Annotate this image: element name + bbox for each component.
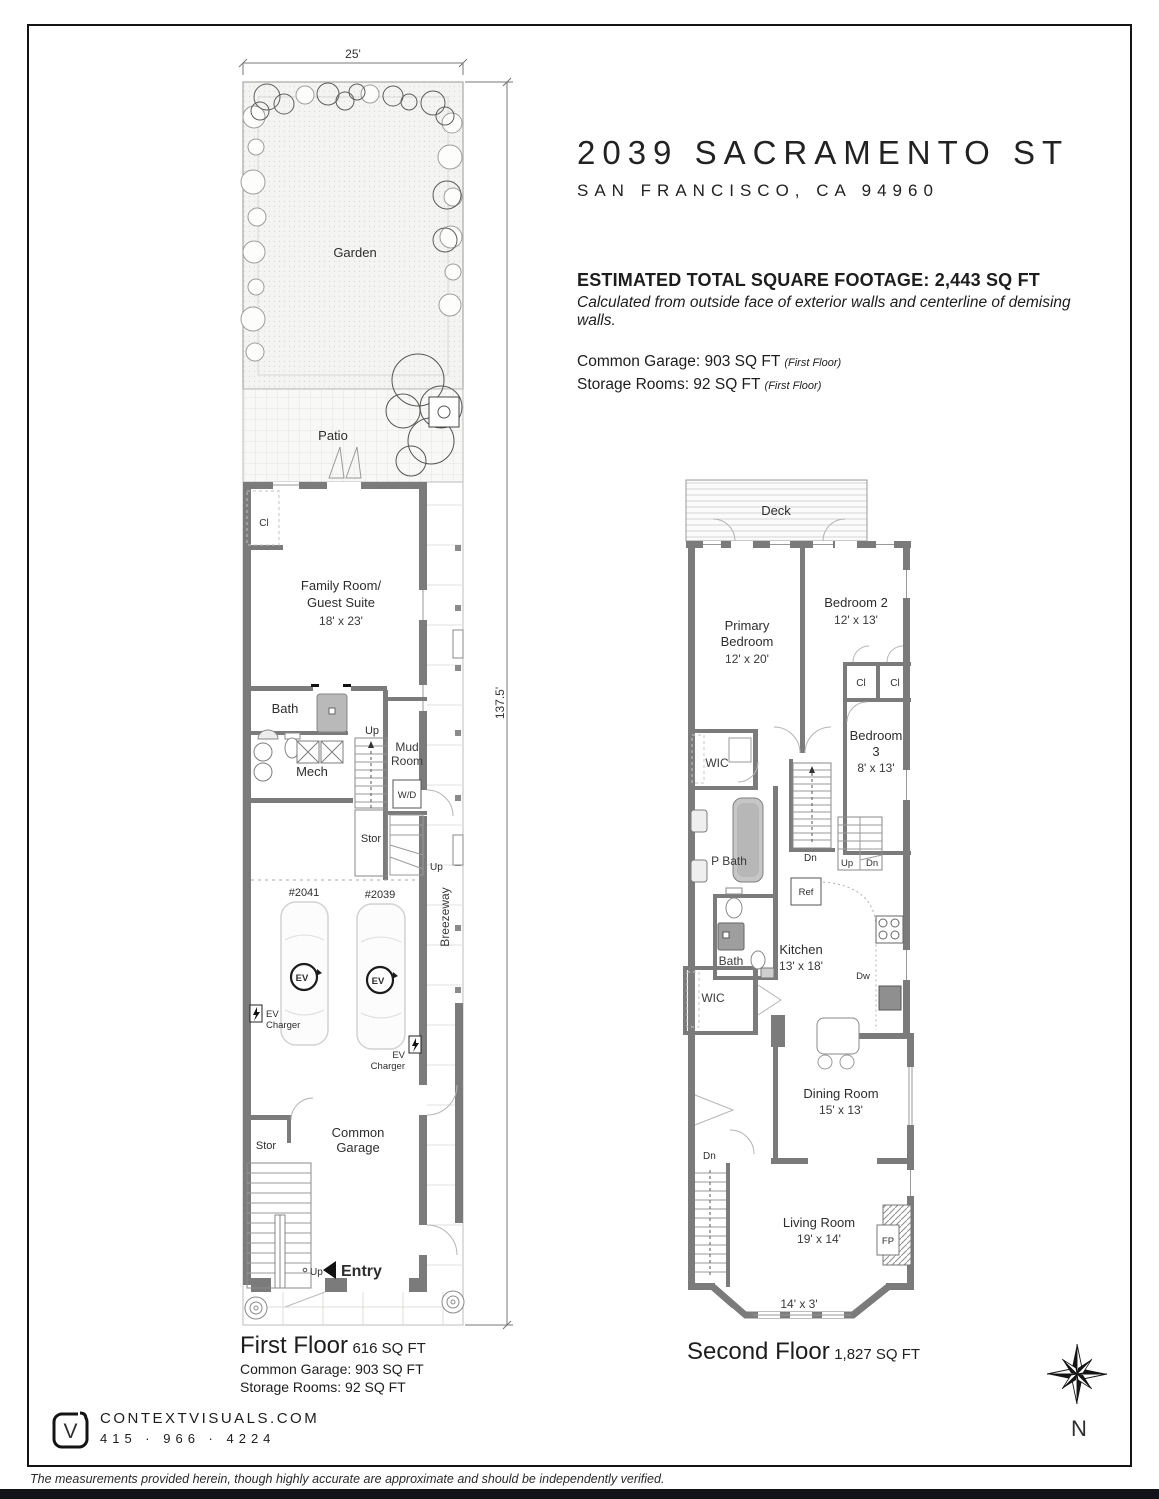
wic-upper: WIC xyxy=(692,735,751,783)
bath-label: Bath xyxy=(272,701,299,716)
second-floor-area: 1,827 SQ FT xyxy=(834,1346,920,1363)
counter-edge xyxy=(823,882,876,1030)
deck-label: Deck xyxy=(761,503,791,518)
bedroom3-label-1: Bedroom xyxy=(850,728,903,743)
footer-website: CONTEXTVISUALS.COM xyxy=(100,1410,319,1427)
deck: Deck xyxy=(686,480,867,541)
property-city: SAN FRANCISCO, CA 94960 xyxy=(577,181,1069,201)
utility-box xyxy=(453,630,463,658)
entry-stair: Up xyxy=(247,1163,323,1288)
garage-label-1: Common xyxy=(332,1125,385,1140)
pbath-sink-2 xyxy=(691,860,707,882)
garden-label: Garden xyxy=(333,245,376,260)
fp-label: FP xyxy=(882,1236,894,1247)
pbath-sink-1 xyxy=(691,810,707,832)
island xyxy=(817,1018,859,1054)
dimension-top xyxy=(239,59,467,75)
lower-stair: Dn xyxy=(695,1151,726,1275)
footer-phone: 415 · 966 · 4224 xyxy=(100,1431,319,1446)
storage-floor-note: (First Floor) xyxy=(765,380,822,392)
lot-depth-dim: 137.5' xyxy=(493,687,507,719)
bedroom2-dim: 12' x 13' xyxy=(834,613,878,627)
mud-room: Mud Room W/D xyxy=(391,740,423,808)
sf-shower xyxy=(718,923,744,950)
primary-label-1: Primary xyxy=(725,618,770,633)
bedroom3-label-2: 3 xyxy=(872,744,879,759)
ev-badge-2-label: EV xyxy=(372,976,385,987)
wic-upper-label: WIC xyxy=(705,756,729,770)
breezeway-label: Breezeway xyxy=(438,887,452,946)
compass-rose: N xyxy=(1032,1336,1122,1446)
sf-bath-label: Bath xyxy=(719,954,744,968)
wic-lower-label: WIC xyxy=(701,991,725,1005)
family-room: Family Room/ Guest Suite 18' x 23' xyxy=(301,578,382,628)
sqft-note: Calculated from outside face of exterior… xyxy=(577,294,1097,330)
kitchen: Ref Dw Kitchen 13' x 18' xyxy=(779,878,903,1069)
car-2039: #2039 EV xyxy=(357,889,405,1049)
side-wall xyxy=(455,1003,463,1223)
primary-label-2: Bedroom xyxy=(721,634,774,649)
garage-label-2: Garage xyxy=(336,1140,379,1155)
compass-north-label: N xyxy=(1071,1416,1087,1441)
dining-label: Dining Room xyxy=(803,1086,878,1101)
winder-stair xyxy=(390,815,423,875)
ref-label: Ref xyxy=(799,887,814,898)
logo-letter: V xyxy=(63,1420,77,1443)
fence-posts xyxy=(455,545,461,993)
property-address: 2039 SACRAMENTO ST xyxy=(577,134,1069,172)
dw-label: Dw xyxy=(856,971,870,982)
stor-low-label: Stor xyxy=(256,1140,277,1152)
first-floor-title: First Floor xyxy=(240,1332,348,1359)
patio-label: Patio xyxy=(318,428,348,443)
lot-width-dim: 25' xyxy=(345,47,361,61)
dn-mid-label: Dn xyxy=(804,853,817,864)
ev-charger-right-l1: EV xyxy=(392,1050,405,1061)
garage-sqft: Common Garage: 903 SQ FT xyxy=(577,353,780,370)
pbath-toilet xyxy=(726,898,742,918)
garden: Garden xyxy=(241,82,463,389)
entry-label: Entry xyxy=(341,1263,382,1280)
dining-dim: 15' x 13' xyxy=(819,1103,863,1117)
ev-charger-left-l2: Charger xyxy=(266,1020,300,1031)
door-jambs xyxy=(311,684,351,687)
dn-lower-label: Dn xyxy=(703,1151,716,1162)
garage-sqft-line: Common Garage: 903 SQ FT (First Floor) xyxy=(577,351,1097,374)
living-label: Living Room xyxy=(783,1215,855,1230)
first-floor-storage-note: Storage Rooms: 92 SQ FT xyxy=(240,1378,426,1396)
sidewalk xyxy=(243,1291,464,1325)
stor-mid-label: Stor xyxy=(361,833,382,845)
total-sqft: ESTIMATED TOTAL SQUARE FOOTAGE: 2,443 SQ… xyxy=(577,270,1097,291)
second-floor-title: Second Floor xyxy=(687,1338,830,1365)
family-room-label-1: Family Room/ xyxy=(301,578,382,593)
first-floor-area: 616 SQ FT xyxy=(352,1340,425,1357)
dn-stair-label: Dn xyxy=(866,858,878,869)
wic-lower: WIC xyxy=(687,972,781,1027)
up-label-main: Up xyxy=(365,725,379,737)
storage-sqft-line: Storage Rooms: 92 SQ FT (First Floor) xyxy=(577,374,1097,397)
first-floor-plan: 25' 137.5' xyxy=(233,45,523,1335)
ev-charger-left-l1: EV xyxy=(266,1009,279,1020)
unit-2041-label: #2041 xyxy=(289,887,320,899)
first-floor-garage-note: Common Garage: 903 SQ FT xyxy=(240,1360,426,1378)
storage-sqft: Storage Rooms: 92 SQ FT xyxy=(577,376,760,393)
utility-box-2 xyxy=(453,835,463,865)
pbath-label: P Bath xyxy=(711,854,747,868)
closet-label: Cl xyxy=(259,518,268,529)
bedroom2-label: Bedroom 2 xyxy=(824,595,888,610)
wd-label: W/D xyxy=(398,790,417,801)
cl-b-label: Cl xyxy=(890,678,899,689)
unit-2039-label: #2039 xyxy=(365,889,396,901)
family-room-dim: 18' x 23' xyxy=(319,614,363,628)
kitchen-label: Kitchen xyxy=(779,942,822,957)
garage-floor-note: (First Floor) xyxy=(784,357,841,369)
ev-charger-right-l2: Charger xyxy=(371,1061,405,1072)
footer-brand: V CONTEXTVISUALS.COM 415 · 966 · 4224 xyxy=(52,1410,319,1450)
bedroom3-dim: 8' x 13' xyxy=(857,761,894,775)
first-floor-caption: First Floor 616 SQ FT Common Garage: 903… xyxy=(240,1332,426,1396)
storage-room: Stor xyxy=(256,1098,313,1152)
up-label-mid: Up xyxy=(430,862,443,873)
entry-marker: Entry xyxy=(323,1261,382,1280)
kitchen-dim: 13' x 18' xyxy=(779,959,823,973)
p-bath: P Bath xyxy=(691,798,763,918)
contextvisuals-logo-icon: V xyxy=(52,1410,90,1450)
sheet-border xyxy=(27,24,1132,1467)
floorplan-sheet: 2039 SACRAMENTO ST SAN FRANCISCO, CA 949… xyxy=(0,0,1159,1499)
title-block: 2039 SACRAMENTO ST SAN FRANCISCO, CA 949… xyxy=(577,134,1069,201)
mech-room: Mech xyxy=(254,741,343,781)
sqft-block: ESTIMATED TOTAL SQUARE FOOTAGE: 2,443 SQ… xyxy=(577,270,1097,397)
mud-label-2: Room xyxy=(391,754,423,768)
cl-a-label: Cl xyxy=(856,678,865,689)
bottom-bar xyxy=(0,1489,1159,1499)
second-floor-plan: Deck xyxy=(673,470,928,1330)
second-floor-caption: Second Floor 1,827 SQ FT xyxy=(687,1338,920,1366)
breezeway-corridor: Breezeway xyxy=(427,505,463,1265)
ev-badge-label: EV xyxy=(296,973,309,984)
up-entry-label: Up xyxy=(310,1267,323,1278)
disclaimer: The measurements provided herein, though… xyxy=(30,1472,730,1486)
mech-label: Mech xyxy=(296,764,328,779)
fireplace: FP xyxy=(877,1205,911,1265)
entry-arrow-icon xyxy=(323,1261,336,1279)
compass-icon xyxy=(1047,1344,1107,1404)
bay-dim-label: 14' x 3' xyxy=(780,1297,817,1311)
kitchen-sink xyxy=(879,986,901,1010)
primary-dim: 12' x 20' xyxy=(725,652,769,666)
family-room-label-2: Guest Suite xyxy=(307,595,375,610)
up-stair-label: Up xyxy=(841,858,853,869)
mud-label-1: Mud xyxy=(395,740,418,754)
living-dim: 19' x 14' xyxy=(797,1232,841,1246)
